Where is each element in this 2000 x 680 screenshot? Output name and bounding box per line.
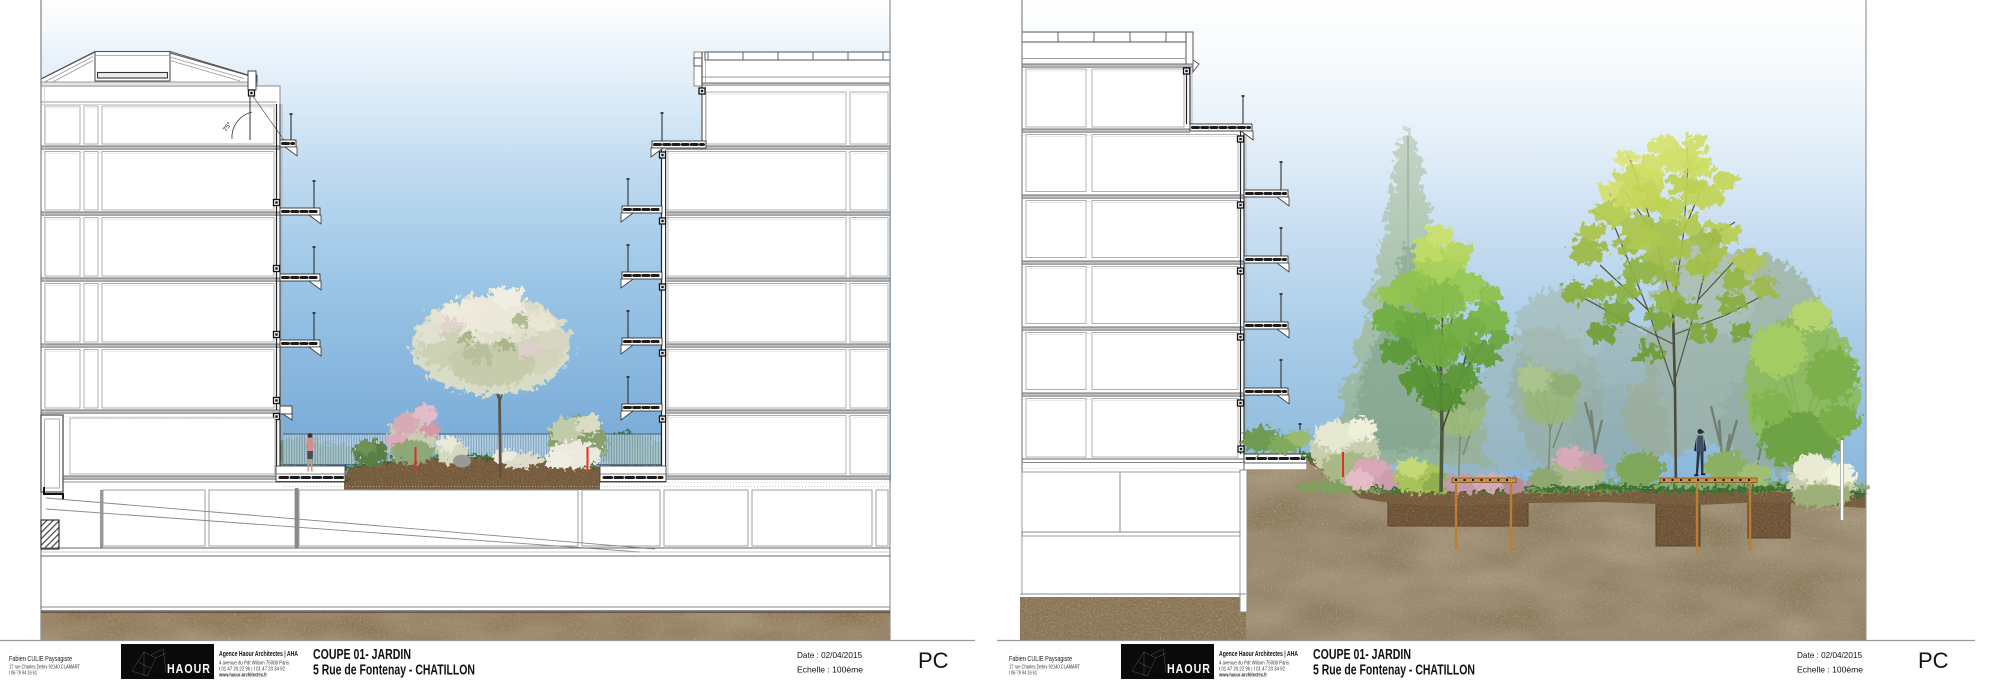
svg-text:Echelle : 100ème: Echelle : 100ème [1797, 665, 1863, 675]
svg-text:www.haour-architectes.fr: www.haour-architectes.fr [218, 673, 267, 679]
svg-text:www.haour-architectes.fr: www.haour-architectes.fr [1218, 673, 1267, 679]
svg-text:COUPE 01- JARDIN: COUPE 01- JARDIN [1313, 647, 1411, 663]
svg-text:PC: PC [1918, 648, 1949, 673]
svg-text:HAOUR: HAOUR [1167, 662, 1211, 676]
svg-text:HAOUR: HAOUR [167, 662, 211, 676]
svg-text:Echelle : 100ème: Echelle : 100ème [797, 665, 863, 675]
svg-text:Date : 02/04/2015: Date : 02/04/2015 [1797, 650, 1862, 660]
svg-text:COUPE 01- JARDIN: COUPE 01- JARDIN [313, 647, 411, 663]
svg-text:Agence Haour Architectes | AHA: Agence Haour Architectes | AHA [1219, 651, 1298, 658]
svg-text:5 Rue de Fontenay - CHATILLON: 5 Rue de Fontenay - CHATILLON [313, 663, 475, 679]
svg-text:Date : 02/04/2015: Date : 02/04/2015 [797, 650, 862, 660]
svg-text:Agence Haour Architectes | AHA: Agence Haour Architectes | AHA [219, 651, 298, 658]
svg-text:Fabien CULIE Paysagiste: Fabien CULIE Paysagiste [9, 654, 72, 663]
svg-text:PC: PC [918, 648, 949, 673]
svg-text:t 06 79 94 16 61: t 06 79 94 16 61 [1009, 671, 1037, 677]
svg-text:t 06 79 94 16 61: t 06 79 94 16 61 [9, 671, 37, 677]
svg-text:Fabien CULIE Paysagiste: Fabien CULIE Paysagiste [1009, 654, 1072, 663]
svg-text:5 Rue de Fontenay - CHATILLON: 5 Rue de Fontenay - CHATILLON [1313, 663, 1475, 679]
